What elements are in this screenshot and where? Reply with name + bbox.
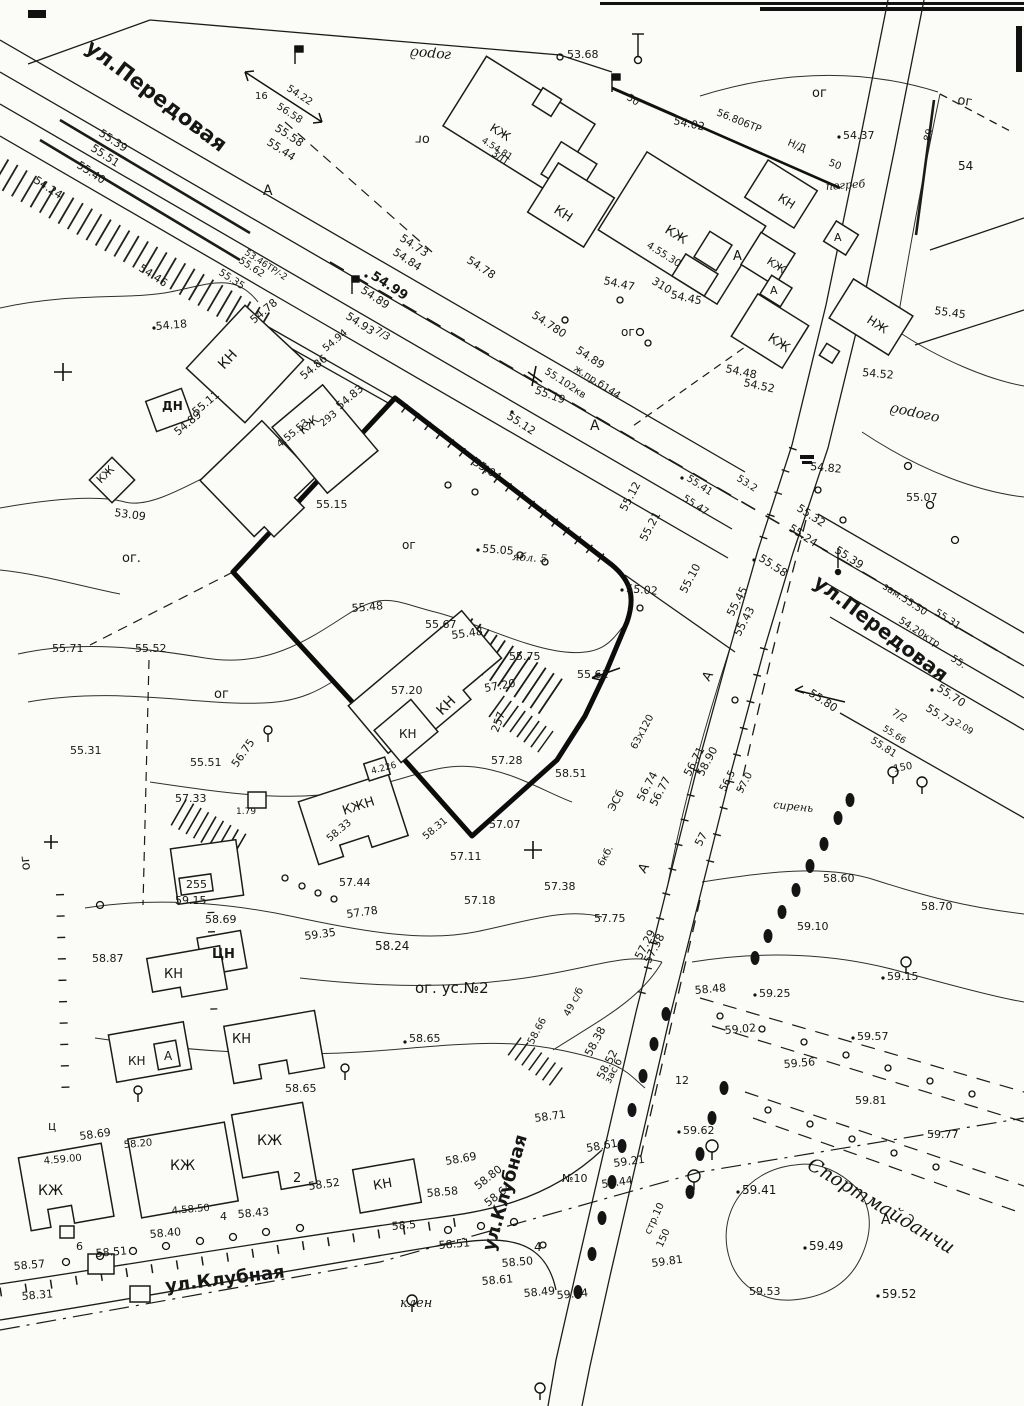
elevation-label: 58.31 — [21, 1287, 54, 1303]
annotation-label: Н/Д — [786, 138, 808, 155]
elevation-label: 57.75 — [594, 912, 626, 925]
area-label: ог — [414, 131, 430, 147]
elevation-label: 58.51 — [438, 1236, 471, 1252]
elevation-label: 54.18 — [155, 317, 188, 333]
elevation-label: 58.5 — [391, 1218, 417, 1233]
elevation-label: 54.47 — [602, 274, 636, 293]
elevation-label: 55.31 — [932, 607, 962, 632]
elevation-label: 57 — [692, 830, 710, 848]
tree-icon — [134, 1086, 142, 1102]
area-label: ог — [214, 687, 229, 702]
area-label: ог — [402, 538, 416, 552]
building-label: КЖ — [38, 1183, 63, 1199]
elevation-label: 58.40 — [149, 1225, 182, 1241]
elevation-label: 58.43 — [237, 1205, 270, 1221]
elevation-label: 58.49 — [523, 1284, 556, 1300]
elevation-label: 54.83 — [334, 382, 366, 412]
area-label: огород — [888, 401, 941, 427]
elevation-label: 58.58 — [426, 1184, 459, 1200]
elevation-label: 54.52 — [742, 376, 776, 395]
elevation-label: 58.31 — [421, 815, 450, 842]
point-label: А — [834, 231, 842, 244]
elevation-label: 58.48 — [694, 981, 727, 997]
elevation-label: 54.82 — [810, 460, 843, 476]
building-label: А — [164, 1049, 173, 1063]
elevation-label: 57.78 — [346, 904, 379, 921]
point-label: А — [733, 249, 742, 264]
point-label: А — [590, 418, 600, 434]
labels-layer: ул.Передоваяул.Передоваяул.Клубнаяул.Клу… — [13, 35, 975, 1311]
elevation-label: 57.18 — [464, 894, 496, 907]
elevation-label: 58.71 — [534, 1108, 567, 1125]
elevation-label: 57.33 — [175, 792, 207, 805]
elevation-label: 58.24 — [375, 939, 409, 953]
elevation-label: 55.04 — [470, 456, 503, 484]
building-label: ДН — [162, 399, 183, 413]
elevation-label: 55.45 — [934, 304, 967, 321]
area-label: сирень — [773, 798, 814, 815]
street-name: ул.Передовая — [809, 570, 953, 687]
elevation-label: 55.51 — [190, 756, 222, 769]
scan-artifacts — [28, 2, 1024, 72]
elevation-label: 57.38 — [544, 880, 576, 893]
elevation-label: 55.80 — [806, 687, 839, 715]
elevation-label: 54.02 — [672, 114, 706, 133]
elevation-label: 57.44 — [339, 876, 371, 889]
elevation-label: 55.61 — [577, 668, 609, 681]
elevation-label: 54.37 — [843, 129, 875, 142]
elevation-label: 58.50 — [501, 1254, 534, 1270]
area-label: ог. — [122, 551, 141, 566]
building-label: КН — [232, 1032, 251, 1047]
elevation-label: 55.02 — [626, 582, 659, 598]
elevation-label: 58.51 — [95, 1244, 128, 1260]
power-pole-icon — [632, 34, 644, 64]
annotation-label: 16 — [255, 91, 268, 102]
elevation-label: 54.94 — [321, 327, 350, 354]
house-number: 2 — [293, 1171, 301, 1186]
power-pole-icon — [352, 276, 359, 294]
elevation-label: 55.48 — [351, 599, 384, 615]
annotation-label: 49 с/б — [562, 986, 586, 1018]
annotation-label: 6кб. — [596, 844, 616, 868]
tree-icon — [264, 726, 272, 742]
elevation-label: 57.11 — [450, 850, 482, 863]
annotation-label: 2.09 — [952, 718, 974, 737]
elevation-label: 57.28 — [491, 754, 523, 767]
elevation-label: 56.75 — [229, 736, 258, 769]
fence-ticks — [0, 408, 793, 1292]
area-label: ог — [956, 93, 973, 110]
building-label: ЦН — [212, 947, 235, 962]
house-number: 4 — [534, 1240, 542, 1254]
elevation-label: 59.81 — [651, 1253, 684, 1270]
building-label: КН — [164, 967, 183, 982]
elevation-label: 57.07 — [489, 818, 521, 831]
annotation-label: ЭСб — [605, 788, 627, 814]
elevation-label: 53.2 — [734, 473, 759, 494]
elevation-label: 58.57 — [13, 1257, 46, 1273]
tree-icon — [917, 777, 927, 794]
elevation-label: 53.68 — [567, 48, 599, 61]
elevation-label: 53.09 — [114, 506, 147, 523]
lamp-icon — [562, 317, 568, 323]
elevation-label: 55.73 — [923, 702, 956, 730]
street-name: ул.Клубная — [164, 1261, 286, 1296]
elevation-label: 59.15 — [887, 970, 919, 983]
area-label: город — [409, 44, 452, 64]
annotation-label: 63х120 — [629, 713, 656, 751]
elevation-label: 59.04 — [556, 1286, 589, 1302]
elevation-label: 57.0 — [735, 771, 755, 796]
buildings-layer — [18, 56, 912, 1302]
elevation-label: 55.71 — [52, 642, 84, 655]
elevation-label: 55.15 — [316, 498, 348, 511]
point-label: А — [699, 669, 716, 684]
annotation-label: 89 — [922, 128, 936, 143]
point-label: А — [770, 284, 778, 297]
elevation-label: 59.21 — [613, 1153, 646, 1170]
elevation-label: 54.52 — [862, 366, 895, 382]
elevation-label: 58.66 — [526, 1016, 549, 1046]
annotation-label: 150 — [893, 761, 914, 775]
elevation-label: 59.25 — [759, 987, 791, 1000]
annotation-label: 50 — [827, 158, 843, 173]
point-label: 54 — [958, 159, 973, 173]
elevation-label: 58.69 — [444, 1150, 477, 1168]
elevation-label: 55.58 — [756, 552, 789, 580]
building-label: КЖ — [257, 1133, 282, 1149]
elevation-label: 59.81 — [855, 1094, 887, 1107]
elevation-label: 59.53 — [749, 1285, 781, 1298]
elevation-label: 54.22 — [284, 83, 314, 108]
annotation-label: 7/2 — [889, 707, 908, 725]
annotation-label: 56.806ТР — [715, 108, 763, 136]
area-label: погреб — [825, 177, 866, 193]
tree-icon — [706, 1140, 718, 1160]
elevation-label: 58.69 — [205, 913, 237, 926]
power-pole-icon — [295, 46, 303, 64]
house-number: 6 — [76, 1240, 83, 1253]
elevation-label: 55.24 — [786, 522, 819, 550]
elevation-label: 55.75 — [509, 650, 541, 663]
elevation-label: 58.65 — [285, 1082, 317, 1095]
building-label: КН — [399, 727, 417, 741]
scanned-map-page: ул.Передоваяул.Передоваяул.Клубнаяул.Клу… — [0, 0, 1024, 1406]
elevation-label: 58.51 — [555, 767, 587, 780]
elevation-label: 59.62 — [683, 1124, 715, 1137]
elevation-label: 57.20 — [391, 684, 423, 697]
elevation-label: 59.02 — [724, 1021, 757, 1037]
elevation-label: 59.10 — [797, 920, 829, 933]
elevation-label: 59.15 — [175, 894, 207, 907]
elevation-label: 58.87 — [92, 952, 124, 965]
elevation-label: 54.780 — [529, 309, 568, 341]
elevation-label: 59.41 — [742, 1183, 776, 1197]
annotation-label: зам.55.50 — [880, 581, 929, 618]
area-label: ябл. 5 — [512, 550, 548, 565]
house-number: 4 — [220, 1210, 227, 1223]
area-label: клен — [400, 1296, 432, 1311]
elevation-label: 59.44 — [601, 1174, 634, 1191]
house-number: №10 — [562, 1172, 587, 1185]
point-label: А — [263, 183, 273, 199]
elevation-label: 58.69 — [79, 1126, 112, 1143]
elevation-label: 59.57 — [857, 1030, 889, 1043]
topographic-map: ул.Передоваяул.Передоваяул.Клубнаяул.Клу… — [0, 0, 1024, 1406]
building-label: 4.58.50 — [171, 1203, 210, 1217]
elevation-label: 55.10 — [677, 561, 703, 595]
elevation-label: 59.77 — [927, 1128, 959, 1141]
annotation-label: 12 — [675, 1074, 689, 1087]
elevation-label: 55.31 — [70, 744, 102, 757]
elevation-label: 55.05 — [482, 542, 515, 558]
building-label: КЖ — [170, 1158, 195, 1174]
elevation-label: 58.65 — [409, 1032, 441, 1045]
elevation-label: 58.60 — [823, 872, 855, 885]
area-label: ог — [812, 86, 827, 101]
elevation-label: 55.21 — [637, 509, 663, 543]
point-label: А — [635, 861, 652, 876]
elevation-label: 55.47 — [680, 493, 710, 518]
elevation-label: 58.61 — [481, 1272, 514, 1288]
elevation-label: 54.46 — [136, 262, 169, 290]
bush-row — [574, 793, 855, 1299]
point-label: ц — [48, 1119, 56, 1133]
elevation-label: 58.61 — [585, 1137, 618, 1155]
map-symbols — [44, 34, 845, 859]
elevation-label: 59.52 — [882, 1287, 916, 1301]
elevation-label: 55.07 — [906, 491, 938, 504]
elevation-label: 59.56 — [783, 1055, 816, 1071]
point-label: А — [881, 1212, 891, 1228]
tree-icon — [535, 1383, 545, 1400]
building-label: 1.79 — [236, 807, 256, 817]
building-label: 255 — [186, 878, 207, 891]
elevation-label: 59.49 — [809, 1239, 843, 1253]
elevation-label: 55.52 — [135, 642, 167, 655]
elevation-label: 54.78 — [464, 254, 497, 282]
elevation-label: 59.35 — [304, 926, 337, 943]
elevation-label: 55.70 — [934, 682, 967, 710]
area-label: ог — [621, 325, 635, 339]
building-label: КН — [128, 1054, 146, 1068]
area-label: ог — [18, 855, 34, 871]
tree-icon — [341, 1064, 349, 1080]
elevation-label: 58.70 — [921, 900, 953, 913]
annotation-label: 150 — [655, 1227, 673, 1249]
elevation-label: 57.20 — [483, 677, 516, 695]
area-label: ог. ус.№2 — [415, 979, 489, 997]
